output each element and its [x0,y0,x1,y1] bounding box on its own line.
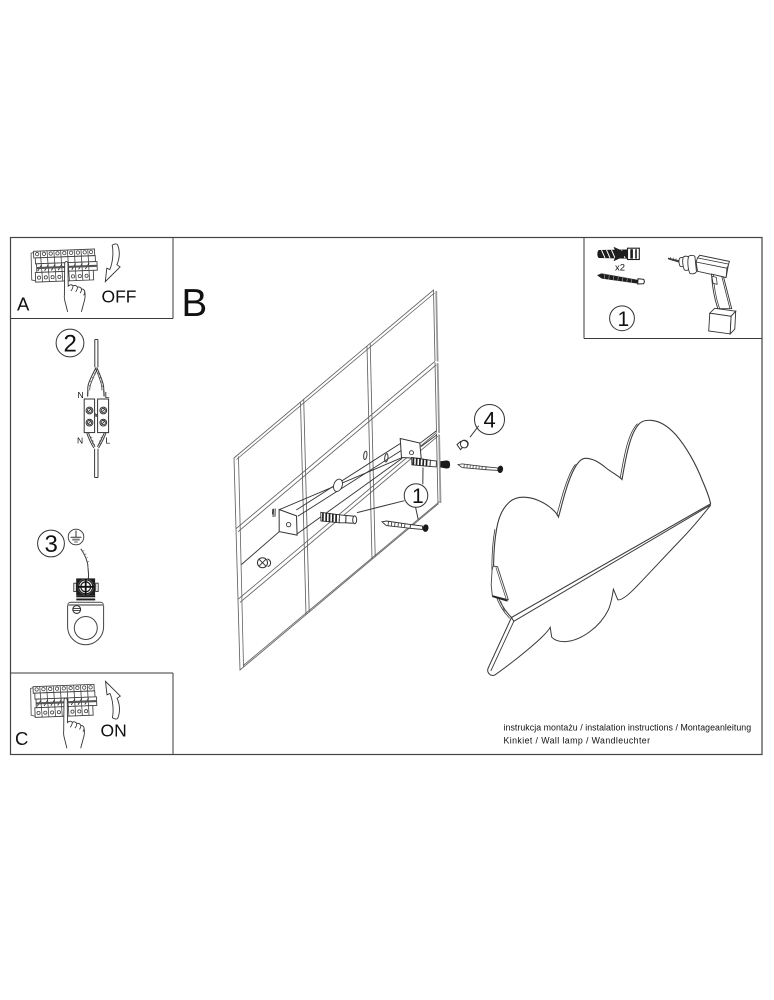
svg-text:N: N [77,436,83,446]
svg-text:1: 1 [412,485,424,508]
svg-text:ON: ON [101,721,127,741]
svg-text:C: C [15,728,28,749]
svg-text:3: 3 [45,531,58,558]
svg-text:N: N [78,390,84,400]
svg-text:4: 4 [484,408,496,433]
svg-text:L: L [106,436,111,446]
svg-text:L: L [105,390,110,400]
svg-text:OFF: OFF [102,287,137,307]
svg-text:x2: x2 [615,263,625,274]
svg-text:1: 1 [618,308,630,331]
svg-text:B: B [182,282,208,325]
svg-text:2: 2 [64,331,77,358]
svg-text:A: A [17,294,30,315]
svg-text:Kinkiet / Wall lamp / Wandleuc: Kinkiet / Wall lamp / Wandleuchter [504,736,651,746]
svg-text:instrukcja montażu / instalati: instrukcja montażu / instalation instruc… [504,723,752,733]
